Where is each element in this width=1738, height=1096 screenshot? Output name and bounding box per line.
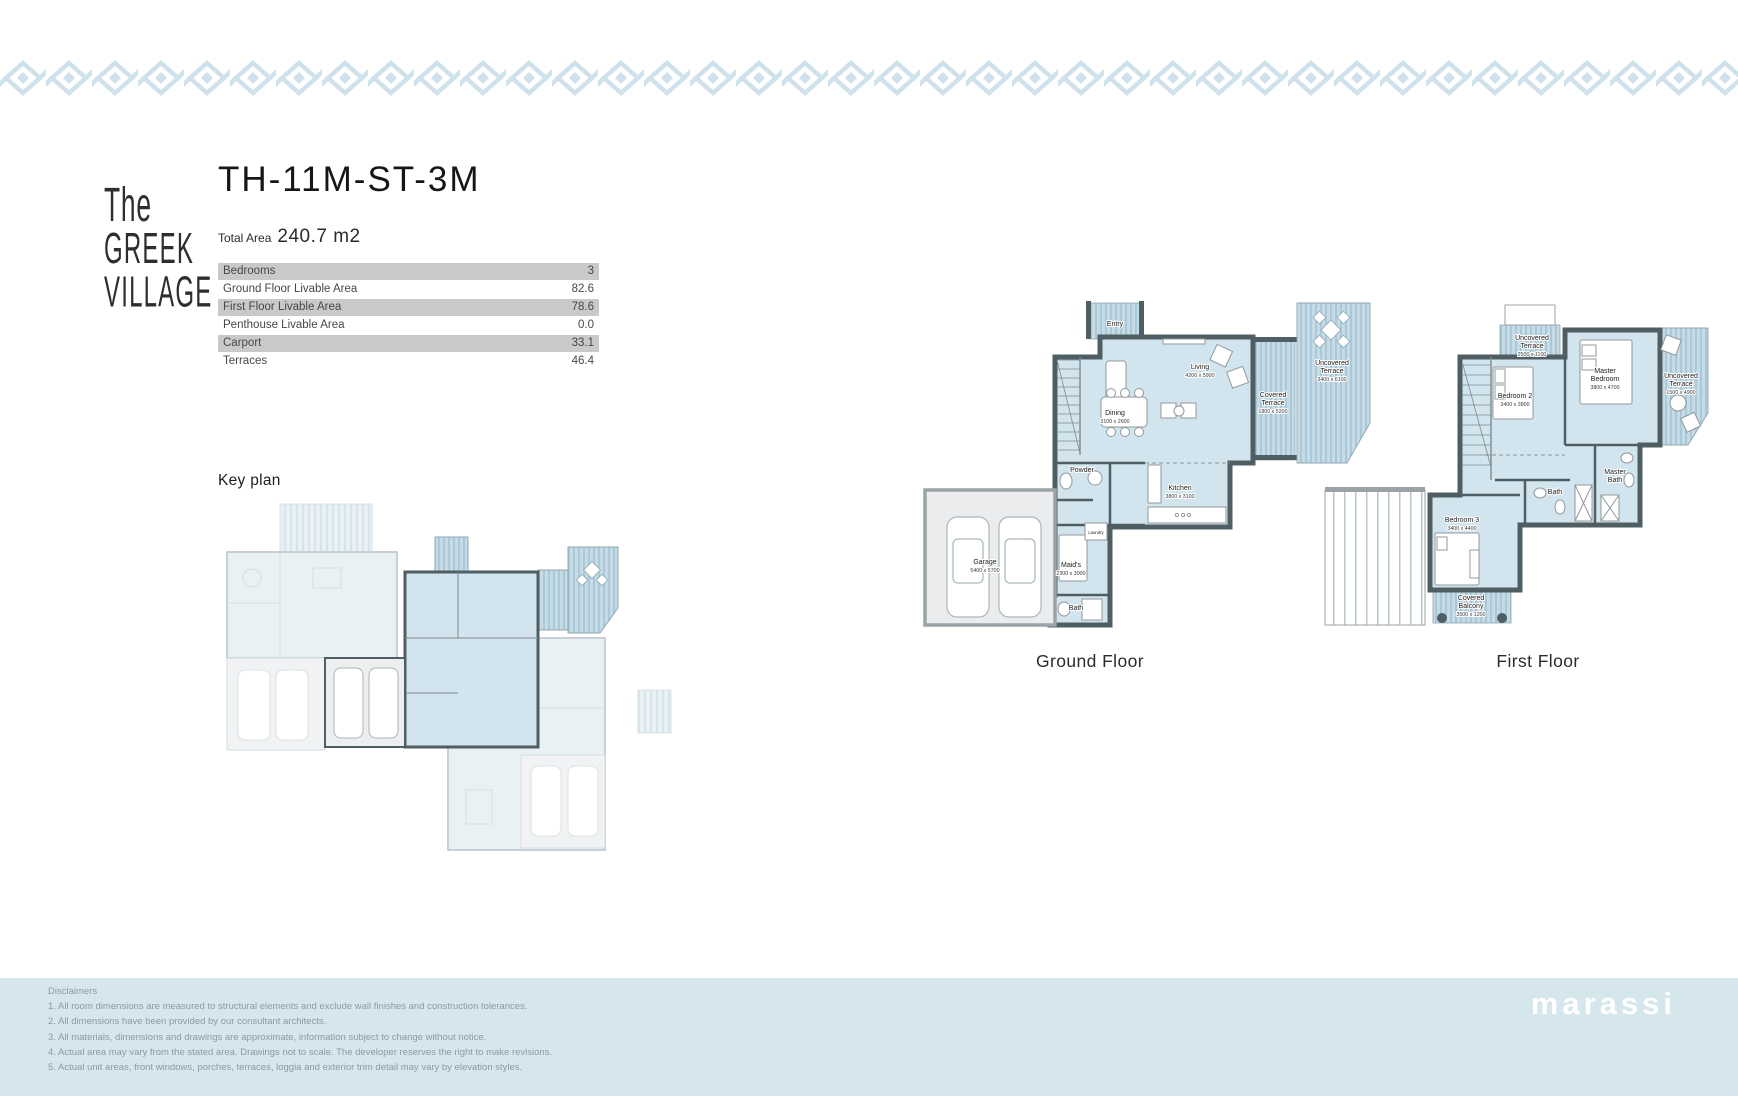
row-label: Ground Floor Livable Area [223,281,357,298]
table-row: Penthouse Livable Area 0.0 [218,317,599,334]
room-label: Maid's [1061,562,1082,569]
room-label: Bath [1069,605,1084,612]
room-label: Covered [1260,392,1287,399]
row-value: 3 [588,263,594,280]
room-label: Bath [1608,477,1623,484]
ground-floor-plan: Entry Living 4200 x 5900 Dining 3100 x 2… [925,301,1370,625]
room-dim: 2500 x 1100 [1518,352,1547,358]
room-label: Entry [1107,321,1124,328]
room-label: Uncovered [1315,360,1349,367]
total-area-value: 240.7 m2 [277,226,360,247]
total-area-label: Total Area [218,231,271,245]
disclaimer-item: 2. All dimensions have been provided by … [48,1014,552,1029]
room-label: Bedroom [1591,376,1620,383]
room-dim: 3800 x 3100 [1165,494,1194,500]
row-value: 33.1 [572,335,594,352]
room-label: Dining [1105,410,1125,417]
disclaimers-title: Disclaimers [48,984,552,999]
total-area: Total Area240.7 m2 [218,226,361,248]
table-row: Carport 33.1 [218,335,599,352]
room-label: Garage [973,559,996,566]
row-label: Terraces [223,353,267,370]
key-plan-drawing [218,498,688,873]
room-label: Terrace [1320,368,1343,375]
room-label: Bath [1548,489,1563,496]
disclaimers: Disclaimers 1. All room dimensions are m… [48,984,552,1075]
floor-plans-drawing: Entry Living 4200 x 5900 Dining 3100 x 2… [915,295,1738,640]
disclaimer-item: 5. Actual unit areas, front windows, por… [48,1060,552,1075]
room-dim: 3400 x 3800 [1500,402,1529,408]
room-label: Covered [1458,595,1485,602]
room-label: Terrace [1520,343,1543,350]
room-label: Living [1191,364,1209,371]
room-dim: 3100 x 2600 [1100,419,1129,425]
ground-floor-caption: Ground Floor [980,651,1200,672]
room-label: Kitchen [1168,485,1191,492]
table-row: Terraces 46.4 [218,353,599,370]
room-label: Uncovered [1664,373,1698,380]
room-label: Terrace [1669,381,1692,388]
room-label: Bedroom 2 [1498,393,1532,400]
room-dim: 5400 x 5700 [970,568,999,574]
logo-line-greek: GREEK [104,229,212,272]
row-value: 78.6 [572,299,594,316]
marassi-logo: marassi [1531,986,1676,1022]
room-dim: 3500 x 1200 [1456,612,1485,618]
room-dim: 4200 x 5900 [1185,373,1214,379]
logo-line-village: VILLAGE [104,271,212,314]
key-plan-label: Key plan [218,472,281,490]
room-dim: 3400 x 6100 [1317,377,1346,383]
room-label: Terrace [1261,400,1284,407]
greek-village-logo: The GREEK VILLAGE [104,182,212,314]
garage [925,490,1055,625]
room-dim: 3400 x 4400 [1447,526,1476,532]
row-label: Carport [223,335,261,352]
table-row: First Floor Livable Area 78.6 [218,299,599,316]
room-dim: 3800 x 4700 [1590,385,1619,391]
room-label: Balcony [1459,603,1484,610]
row-label: First Floor Livable Area [223,299,341,316]
room-label: Master [1594,368,1616,375]
first-floor-plan: Uncovered Terrace 2500 x 1100 Bedroom 2 … [1325,305,1708,625]
roof-terrace-below [1325,490,1425,625]
room-dim: 1800 x 5200 [1258,409,1287,415]
unit-title: TH-11M-ST-3M [218,160,481,200]
first-floor-caption: First Floor [1428,651,1648,672]
disclaimer-item: 1. All room dimensions are measured to s… [48,999,552,1014]
row-value: 82.6 [572,281,594,298]
row-value: 0.0 [578,317,594,334]
area-table: Bedrooms 3 Ground Floor Livable Area 82.… [218,263,599,371]
room-dim: 1500 x 4900 [1666,390,1695,396]
logo-line-the: The [104,182,212,229]
room-label: Powder [1070,467,1094,474]
room-label: Uncovered [1515,335,1549,342]
room-label: Laundry [1088,530,1104,535]
row-label: Penthouse Livable Area [223,317,344,334]
room-dim: 2300 x 3000 [1056,571,1085,577]
greek-key-border [0,58,1738,98]
disclaimer-item: 4. Actual area may vary from the stated … [48,1045,552,1060]
table-row: Bedrooms 3 [218,263,599,280]
row-label: Bedrooms [223,263,275,280]
table-row: Ground Floor Livable Area 82.6 [218,281,599,298]
disclaimer-item: 3. All materials, dimensions and drawing… [48,1030,552,1045]
row-value: 46.4 [572,353,594,370]
room-label: Bedroom 3 [1445,517,1479,524]
bay-window [1505,305,1555,325]
room-label: Master [1604,469,1626,476]
